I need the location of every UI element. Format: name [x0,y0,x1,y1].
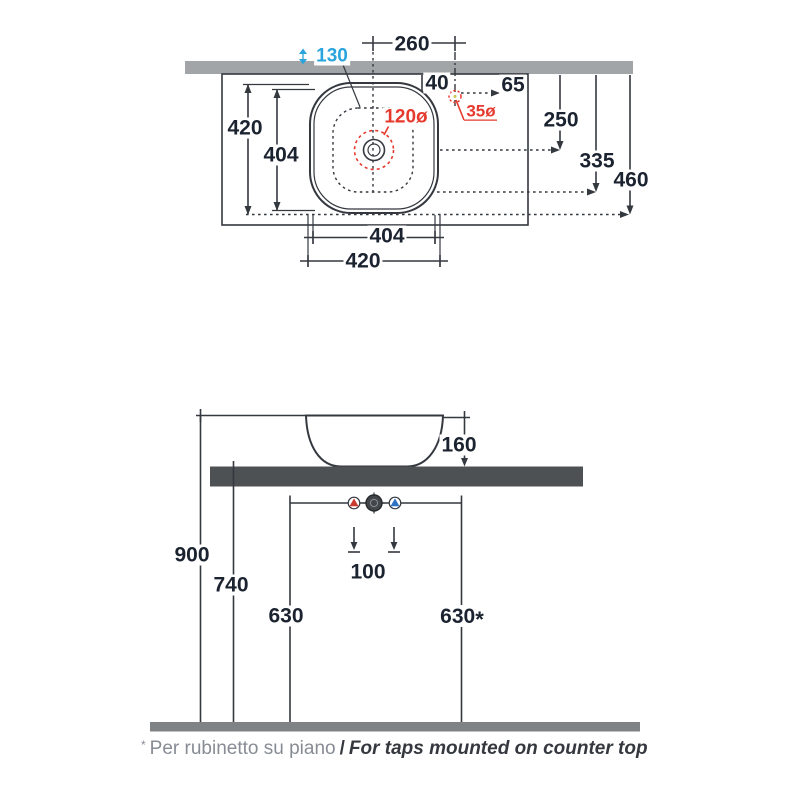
dim-tap-hole-diameter-label: 35ø [464,103,497,120]
footnote-reference-mark: * [475,609,484,631]
dim-335-label: 335 [577,151,616,172]
dim-160-label: 160 [439,435,478,456]
dim-65-label: 65 [499,75,526,96]
footnote-english-text: For taps mounted on counter top [349,738,648,759]
dim-420-side-label: 420 [225,118,264,139]
footnote-separator: / [340,738,345,759]
dim-420-width-label: 420 [343,251,382,272]
footnote: *Per rubinetto su piano/For taps mounted… [141,737,648,761]
footnote-mark: * [141,738,146,752]
mixer-valve-icon [364,493,385,514]
dim-260-label: 260 [392,34,431,55]
dim-bowl-depth-label: 130 [314,47,350,66]
technical-drawing-sheet: 130 260 40 65 250 335 460 420 404 404 42… [0,0,800,800]
dim-630-star-label: 630* [438,605,486,627]
side-view [150,409,640,732]
wall-slab-top-view [185,61,633,74]
counter-slab-side-view [210,467,583,487]
dim-404-side-label: 404 [261,145,300,166]
drain-marker [364,140,385,161]
dim-900-label: 900 [172,545,211,566]
basin-top-view [310,83,438,213]
dim-100-label: 100 [348,562,387,583]
dim-40-label: 40 [423,73,450,94]
floor-bar [150,722,640,732]
hot-water-icon [348,497,360,509]
footnote-italian-text: Per rubinetto su piano [150,738,336,759]
dim-460-label: 460 [611,170,650,191]
supply-arrows [348,527,400,552]
dim-630-label: 630 [266,606,305,627]
dim-404-width-label: 404 [367,226,406,247]
dim-drain-diameter-label: 120ø [382,108,429,127]
cold-water-icon [389,497,401,509]
top-view [185,36,634,267]
dim-250-label: 250 [541,110,580,131]
dim-740-label: 740 [211,575,250,596]
basin-side-view [306,416,443,467]
